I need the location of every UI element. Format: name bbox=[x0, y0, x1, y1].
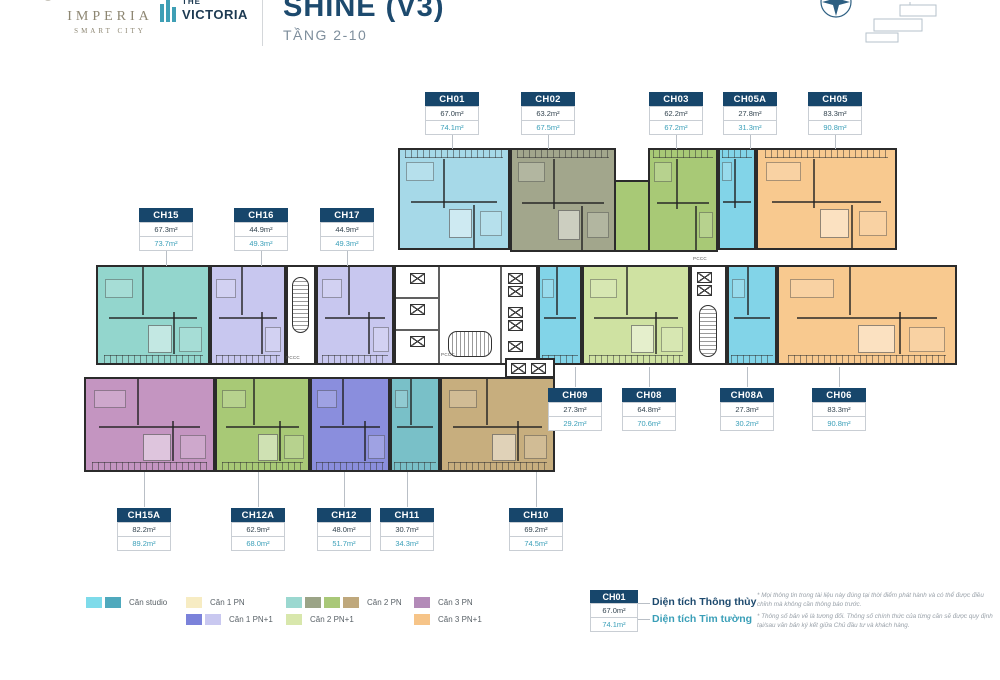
unit-label-ch15: CH1567.3m²73.7m² bbox=[139, 208, 193, 251]
unit-code: CH10 bbox=[509, 508, 563, 523]
legend-label: Căn 3 PN bbox=[438, 598, 473, 607]
unit-area-gross: 29.2m² bbox=[548, 416, 602, 431]
legend-swatch bbox=[205, 614, 221, 625]
interior-wall bbox=[453, 426, 542, 428]
legend-swatch bbox=[414, 597, 430, 608]
unit-ch05 bbox=[756, 148, 897, 250]
furniture-outline bbox=[449, 390, 478, 408]
interior-wall bbox=[473, 205, 475, 248]
unit-area-gross: 68.0m² bbox=[231, 536, 285, 551]
gross-area-label: Diện tích Tim tường bbox=[652, 613, 752, 625]
unit-area-gross: 30.2m² bbox=[720, 416, 774, 431]
unit-label-ch09: CH0927.3m²29.2m² bbox=[548, 388, 602, 431]
legend-label: Căn 2 PN bbox=[367, 598, 402, 607]
balcony-rail bbox=[316, 462, 384, 470]
net-area-label: Diện tích Thông thủy bbox=[652, 596, 756, 608]
balcony-rail bbox=[731, 355, 772, 363]
interior-wall bbox=[747, 267, 749, 315]
unit-area-net: 63.2m² bbox=[521, 106, 575, 121]
unit-area-net: 83.3m² bbox=[812, 402, 866, 417]
unit-label-ch05: CH0583.3m²90.8m² bbox=[808, 92, 862, 135]
imperia-sub: SMART CITY bbox=[62, 27, 158, 35]
furniture-outline bbox=[542, 279, 554, 298]
unit-label-ch03: CH0362.2m²67.2m² bbox=[649, 92, 703, 135]
unit-area-net: 62.2m² bbox=[649, 106, 703, 121]
unit-area-net: 48.0m² bbox=[317, 522, 371, 537]
label-leader-line bbox=[536, 472, 537, 507]
unit-area-net: 27.8m² bbox=[723, 106, 777, 121]
unit-code: CH17 bbox=[320, 208, 374, 223]
sample-line bbox=[638, 603, 650, 604]
interior-wall bbox=[325, 317, 384, 319]
elevator-icon bbox=[531, 363, 546, 374]
furniture-outline bbox=[317, 390, 337, 408]
furniture-outline bbox=[94, 390, 126, 408]
interior-wall bbox=[320, 426, 381, 428]
bathroom bbox=[148, 325, 172, 354]
bathroom bbox=[258, 434, 278, 461]
interior-wall bbox=[772, 201, 882, 203]
unit-label-ch10: CH1069.2m²74.5m² bbox=[509, 508, 563, 551]
interior-wall bbox=[486, 379, 488, 425]
balcony-rail bbox=[216, 355, 281, 363]
unit-ch08 bbox=[582, 265, 690, 365]
unit-area-net: 82.2m² bbox=[117, 522, 171, 537]
unit-label-ch05a: CH05A27.8m²31.3m² bbox=[723, 92, 777, 135]
furniture-outline bbox=[368, 435, 384, 459]
unit-area-gross: 49.3m² bbox=[320, 236, 374, 251]
unit-area-gross: 34.3m² bbox=[380, 536, 434, 551]
furniture-outline bbox=[722, 162, 732, 182]
unit-ch08a bbox=[727, 265, 777, 365]
sample-line bbox=[638, 619, 650, 620]
interior-wall bbox=[851, 205, 853, 248]
furniture-outline bbox=[284, 435, 303, 459]
unit-area-net: 27.3m² bbox=[720, 402, 774, 417]
core-label: PCCC bbox=[441, 352, 455, 357]
interior-wall bbox=[109, 317, 197, 319]
legend-swatch bbox=[286, 597, 302, 608]
interior-wall bbox=[348, 267, 350, 315]
interior-wall bbox=[734, 317, 771, 319]
disclaimer: * Mọi thông tin trong tài liệu này đúng … bbox=[757, 591, 995, 633]
furniture-outline bbox=[322, 279, 342, 298]
unit-area-gross: 90.8m² bbox=[808, 120, 862, 135]
elevator-icon bbox=[410, 336, 425, 347]
furniture-outline bbox=[373, 327, 389, 352]
legend-item: Căn studio bbox=[86, 597, 167, 608]
victoria-name: VICTORIA bbox=[182, 7, 248, 22]
unit-code: CH05A bbox=[723, 92, 777, 107]
unit-area-net: 30.7m² bbox=[380, 522, 434, 537]
unit-ch15 bbox=[96, 265, 210, 365]
interior-wall bbox=[253, 379, 255, 425]
unit-code: CH15 bbox=[139, 208, 193, 223]
furniture-outline bbox=[406, 162, 434, 182]
interior-wall bbox=[544, 317, 576, 319]
unit-label-ch15a: CH15A82.2m²89.2m² bbox=[117, 508, 171, 551]
bathroom bbox=[449, 209, 473, 238]
sample-unit-code: CH01 bbox=[590, 590, 638, 604]
legend-sample-label: CH01 67.0m² 74.1m² bbox=[590, 590, 638, 632]
label-leader-line bbox=[258, 472, 259, 507]
elevator-icon bbox=[410, 304, 425, 315]
furniture-outline bbox=[179, 327, 202, 352]
legend-item: Căn 3 PN bbox=[414, 597, 473, 608]
interior-wall bbox=[241, 267, 243, 315]
label-leader-line bbox=[839, 367, 840, 387]
unit-code: CH01 bbox=[425, 92, 479, 107]
core-label: PCCC bbox=[693, 256, 707, 261]
interior-wall bbox=[226, 426, 299, 428]
unit-label-ch08: CH0864.8m²70.6m² bbox=[622, 388, 676, 431]
unit-area-gross: 67.2m² bbox=[649, 120, 703, 135]
disclaimer-line: * Mọi thông tin trong tài liệu này đúng … bbox=[757, 591, 995, 610]
interior-wall bbox=[849, 267, 851, 315]
unit-code: CH08 bbox=[622, 388, 676, 403]
unit-area-net: 67.0m² bbox=[425, 106, 479, 121]
furniture-outline bbox=[909, 327, 944, 352]
interior-wall bbox=[797, 317, 938, 319]
unit-area-net: 64.8m² bbox=[622, 402, 676, 417]
legend-label: Căn studio bbox=[129, 598, 167, 607]
unit-area-net: 44.9m² bbox=[234, 222, 288, 237]
unit-ch06 bbox=[777, 265, 957, 365]
unit-label-ch01: CH0167.0m²74.1m² bbox=[425, 92, 479, 135]
legend-label: Căn 1 PN bbox=[210, 598, 245, 607]
legend-item: Căn 3 PN+1 bbox=[414, 614, 482, 625]
elevator-icon bbox=[511, 363, 526, 374]
header-divider bbox=[262, 0, 263, 46]
stair-core-right bbox=[690, 265, 727, 365]
interior-wall bbox=[99, 426, 201, 428]
balcony-rail bbox=[222, 462, 304, 470]
unit-label-ch16: CH1644.9m²49.3m² bbox=[234, 208, 288, 251]
legend-item: Căn 1 PN bbox=[186, 597, 245, 608]
elevator-icon bbox=[697, 285, 712, 296]
unit-code: CH09 bbox=[548, 388, 602, 403]
staircase bbox=[292, 277, 309, 333]
interior-wall bbox=[522, 202, 604, 204]
unit-ch16 bbox=[210, 265, 286, 365]
page-subtitle: TẦNG 2-10 bbox=[283, 27, 444, 43]
unit-ch15a bbox=[84, 377, 215, 472]
label-leader-line bbox=[144, 472, 145, 507]
furniture-outline bbox=[790, 279, 834, 298]
label-leader-line bbox=[649, 367, 650, 387]
label-leader-line bbox=[747, 367, 748, 387]
furniture-outline bbox=[699, 212, 714, 238]
furniture-outline bbox=[518, 162, 544, 182]
unit-ch05a bbox=[718, 148, 756, 250]
legend-swatch bbox=[105, 597, 121, 608]
imperia-name: IMPERIA bbox=[62, 9, 158, 25]
furniture-outline bbox=[222, 390, 246, 408]
interior-wall bbox=[219, 317, 277, 319]
elevator-icon bbox=[508, 273, 523, 284]
legend-swatch bbox=[324, 597, 340, 608]
unit-ch09 bbox=[538, 265, 582, 365]
unit-area-gross: 89.2m² bbox=[117, 536, 171, 551]
furniture-outline bbox=[524, 435, 547, 459]
legend-swatch bbox=[86, 597, 102, 608]
central-core bbox=[394, 265, 538, 365]
unit-ch03-annex bbox=[614, 180, 650, 252]
interior-wall bbox=[397, 426, 434, 428]
furniture-outline bbox=[265, 327, 281, 352]
furniture-outline bbox=[395, 390, 408, 408]
balcony-rail bbox=[104, 355, 203, 363]
label-leader-line bbox=[575, 367, 576, 387]
unit-area-gross: 51.7m² bbox=[317, 536, 371, 551]
unit-ch03 bbox=[648, 148, 718, 252]
imperia-logo: IMPERIA SMART CITY bbox=[62, 0, 158, 35]
interior-wall bbox=[142, 267, 144, 315]
unit-label-ch11: CH1130.7m²34.3m² bbox=[380, 508, 434, 551]
unit-area-gross: 74.1m² bbox=[425, 120, 479, 135]
unit-label-ch08a: CH08A27.3m²30.2m² bbox=[720, 388, 774, 431]
balcony-rail bbox=[722, 150, 753, 158]
furniture-outline bbox=[105, 279, 133, 298]
balcony-rail bbox=[394, 462, 435, 470]
furniture-outline bbox=[480, 211, 503, 237]
legend-item: Căn 2 PN bbox=[286, 597, 402, 608]
interior-wall bbox=[657, 202, 710, 204]
legend-swatch bbox=[186, 597, 202, 608]
bathroom bbox=[143, 434, 170, 461]
bathroom bbox=[492, 434, 516, 461]
label-leader-line bbox=[407, 472, 408, 507]
legend-swatch bbox=[186, 614, 202, 625]
legend-swatch bbox=[305, 597, 321, 608]
elevator-icon bbox=[508, 286, 523, 297]
unit-label-ch06: CH0683.3m²90.8m² bbox=[812, 388, 866, 431]
unit-code: CH03 bbox=[649, 92, 703, 107]
stair-core-left bbox=[286, 265, 316, 365]
unit-code: CH16 bbox=[234, 208, 288, 223]
legend-swatch bbox=[343, 597, 359, 608]
unit-ch12 bbox=[310, 377, 390, 472]
furniture-outline bbox=[590, 279, 617, 298]
unit-code: CH02 bbox=[521, 92, 575, 107]
page-title: SHINE (V3) bbox=[283, 0, 444, 24]
interior-wall bbox=[581, 206, 583, 250]
unit-area-net: 44.9m² bbox=[320, 222, 374, 237]
interior-wall bbox=[723, 201, 750, 203]
interior-wall bbox=[594, 317, 677, 319]
unit-ch11 bbox=[390, 377, 440, 472]
unit-area-gross: 70.6m² bbox=[622, 416, 676, 431]
unit-label-ch17: CH1744.9m²49.3m² bbox=[320, 208, 374, 251]
label-leader-line bbox=[344, 472, 345, 507]
bathroom bbox=[858, 325, 895, 354]
elevator-icon bbox=[508, 307, 523, 318]
interior-wall bbox=[411, 201, 497, 203]
furniture-outline bbox=[587, 212, 608, 238]
elevator-icon bbox=[410, 273, 425, 284]
floor-plan-page: IMPERIA SMART CITY THE VICTORIA SHINE (V… bbox=[0, 0, 1000, 680]
unit-code: CH12A bbox=[231, 508, 285, 523]
bathroom bbox=[558, 210, 580, 240]
imperia-logo-ornament-icon bbox=[38, 0, 58, 6]
legend-item: Căn 2 PN+1 bbox=[286, 614, 354, 625]
unit-area-gross: 73.7m² bbox=[139, 236, 193, 251]
balcony-rail bbox=[765, 150, 888, 158]
unit-ch10 bbox=[440, 377, 555, 472]
bathroom bbox=[820, 209, 849, 238]
balcony-rail bbox=[405, 150, 502, 158]
balcony-rail bbox=[653, 150, 712, 158]
balcony-rail bbox=[448, 462, 548, 470]
victoria-the: THE bbox=[182, 0, 248, 6]
furniture-outline bbox=[859, 211, 887, 237]
furniture-outline bbox=[766, 162, 801, 182]
unit-area-net: 69.2m² bbox=[509, 522, 563, 537]
connector-core bbox=[505, 358, 555, 378]
unit-area-net: 83.3m² bbox=[808, 106, 862, 121]
unit-area-net: 27.3m² bbox=[548, 402, 602, 417]
sample-area-net: 67.0m² bbox=[590, 603, 638, 618]
unit-ch01 bbox=[398, 148, 510, 250]
sample-area-gross: 74.1m² bbox=[590, 617, 638, 632]
legend-label: Căn 2 PN+1 bbox=[310, 615, 354, 624]
unit-code: CH08A bbox=[720, 388, 774, 403]
interior-wall bbox=[137, 379, 139, 425]
interior-wall bbox=[410, 379, 412, 425]
unit-ch02 bbox=[510, 148, 616, 252]
unit-label-ch12a: CH12A62.9m²68.0m² bbox=[231, 508, 285, 551]
furniture-outline bbox=[654, 162, 672, 182]
unit-label-ch02: CH0263.2m²67.5m² bbox=[521, 92, 575, 135]
unit-code: CH12 bbox=[317, 508, 371, 523]
compass-icon bbox=[818, 0, 854, 20]
balcony-rail bbox=[517, 150, 609, 158]
unit-area-gross: 90.8m² bbox=[812, 416, 866, 431]
elevator-icon bbox=[508, 341, 523, 352]
building-key-plan bbox=[862, 2, 942, 46]
furniture-outline bbox=[732, 279, 745, 298]
unit-area-gross: 67.5m² bbox=[521, 120, 575, 135]
furniture-outline bbox=[661, 327, 683, 352]
furniture-outline bbox=[216, 279, 235, 298]
unit-area-gross: 74.5m² bbox=[509, 536, 563, 551]
legend-swatch bbox=[286, 614, 302, 625]
unit-label-ch12: CH1248.0m²51.7m² bbox=[317, 508, 371, 551]
interior-wall bbox=[626, 267, 628, 315]
unit-area-net: 67.3m² bbox=[139, 222, 193, 237]
disclaimer-line: * Thông số bản vẽ là tương đối. Thông số… bbox=[757, 612, 995, 631]
legend-swatch bbox=[414, 614, 430, 625]
balcony-rail bbox=[322, 355, 389, 363]
interior-wall bbox=[556, 267, 558, 315]
unit-code: CH05 bbox=[808, 92, 862, 107]
unit-area-gross: 31.3m² bbox=[723, 120, 777, 135]
unit-code: CH06 bbox=[812, 388, 866, 403]
unit-ch12a bbox=[215, 377, 310, 472]
legend-item: Căn 1 PN+1 bbox=[186, 614, 273, 625]
unit-code: CH11 bbox=[380, 508, 434, 523]
interior-wall bbox=[342, 379, 344, 425]
balcony-rail bbox=[788, 355, 946, 363]
elevator-icon bbox=[697, 272, 712, 283]
staircase bbox=[699, 305, 717, 357]
unit-area-gross: 49.3m² bbox=[234, 236, 288, 251]
balcony-rail bbox=[589, 355, 683, 363]
bathroom bbox=[631, 325, 654, 354]
interior-wall bbox=[695, 206, 697, 250]
core-label: PCCC bbox=[286, 355, 300, 360]
balcony-rail bbox=[92, 462, 206, 470]
unit-area-net: 62.9m² bbox=[231, 522, 285, 537]
unit-ch17 bbox=[316, 265, 394, 365]
unit-code: CH15A bbox=[117, 508, 171, 523]
elevator-icon bbox=[508, 320, 523, 331]
legend-label: Căn 1 PN+1 bbox=[229, 615, 273, 624]
furniture-outline bbox=[180, 435, 206, 459]
victoria-logo-icon bbox=[160, 0, 176, 22]
legend-label: Căn 3 PN+1 bbox=[438, 615, 482, 624]
